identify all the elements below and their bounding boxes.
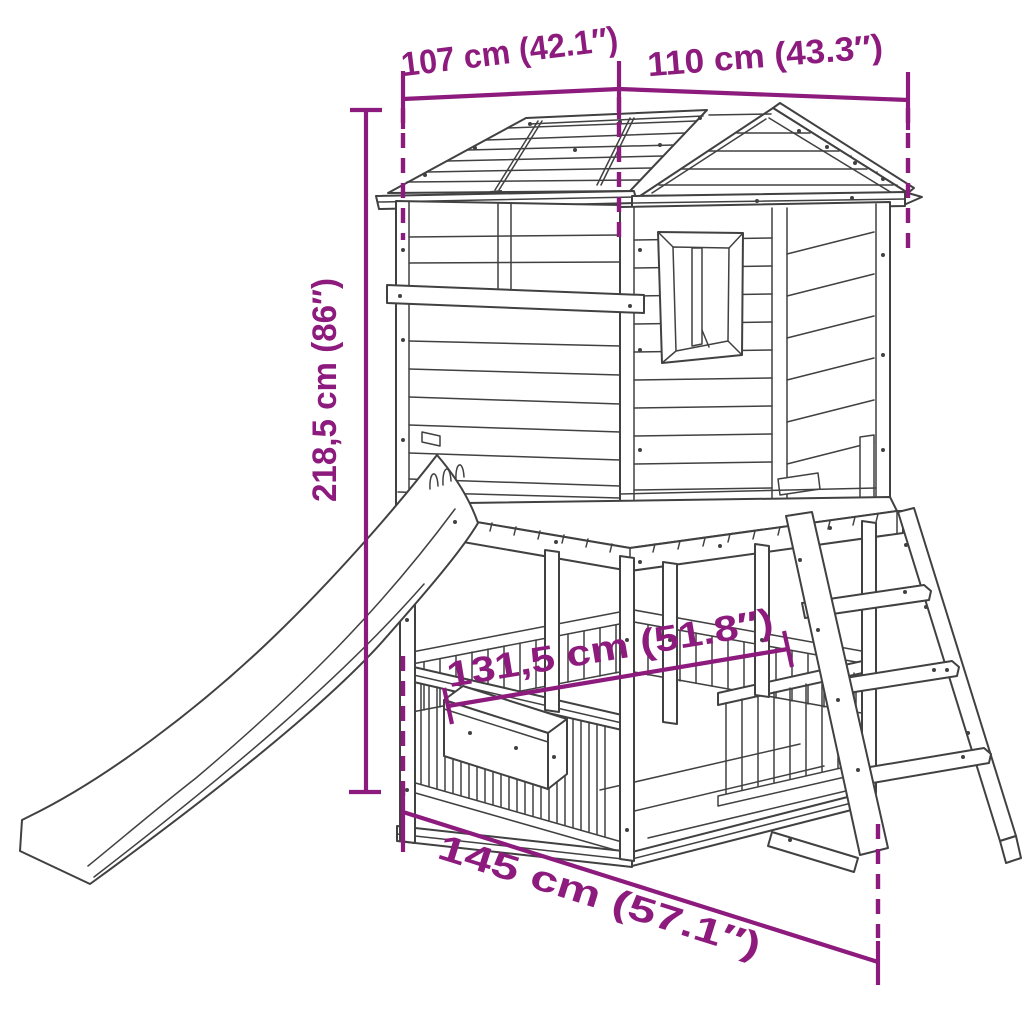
label-height: 218,5 cm (86″) (306, 278, 344, 502)
playhouse (20, 103, 1021, 884)
deck-floor-boards (600, 744, 850, 838)
label-base-width: 145 cm (57.1″) (433, 826, 766, 966)
dimension-height (349, 110, 382, 792)
left-side-wall (387, 201, 644, 509)
playhouse-line-drawing: 107 cm (42.1″) 110 cm (43.3″) 218,5 cm (… (0, 0, 1024, 1024)
dimension-diagram: 107 cm (42.1″) 110 cm (43.3″) 218,5 cm (… (0, 0, 1024, 1024)
window (658, 232, 743, 363)
label-roof-left: 107 cm (42.1″) (399, 20, 620, 84)
front-wall (620, 202, 890, 509)
label-roof-right: 110 cm (43.3″) (646, 28, 884, 84)
